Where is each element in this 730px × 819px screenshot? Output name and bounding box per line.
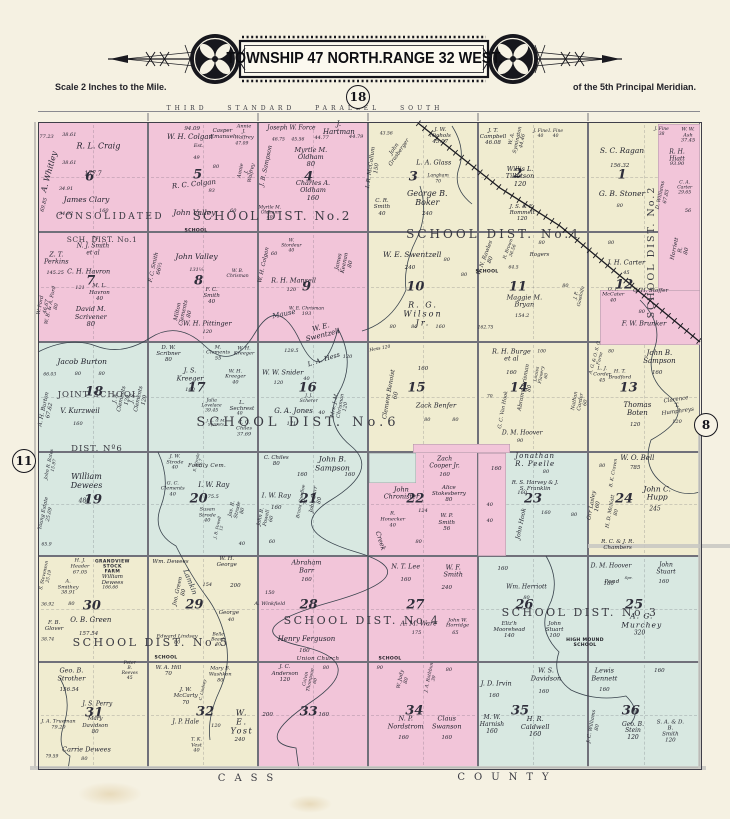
section-number: 1 <box>617 167 626 182</box>
owner-label: Charles A. Oldham 160 <box>296 180 330 202</box>
owner-label: 80 <box>608 349 614 354</box>
owner-label: Wm. Dewees <box>153 559 189 565</box>
section-10: 10W. E. Swentzell2408080R. G. Wilson Jr.… <box>368 232 478 342</box>
owner-label: F. W. Brunker <box>622 320 666 327</box>
owner-label: Jas. R. Strode 80 <box>227 499 247 522</box>
owner-label: J. A. Rathbun 30 <box>424 662 440 693</box>
meridian-note: of the 5th Principal Meridian. <box>573 82 696 92</box>
owner-label: B. K. Craven <box>609 459 619 488</box>
owner-label: 160 <box>319 712 330 718</box>
owner-label: A. Winkfield <box>254 602 285 608</box>
section-35: 35J. D. Irvin160W. S. Davidson160M. W. H… <box>478 662 588 768</box>
district-label: SCHOOL DIST. No.4 <box>256 614 468 627</box>
owner-label: J. B. Sampson <box>259 145 274 187</box>
owner-label: L. Sechrest <box>230 399 255 411</box>
section-19: 19John R. Bates 15.97William Dewees480Yo… <box>38 452 148 556</box>
owner-label: 156.54 <box>60 687 79 693</box>
owner-label: F. B. Glover <box>45 619 63 631</box>
owner-label: Claus Swanson <box>432 716 462 731</box>
owner-label: C. A. Carter 29.65 <box>677 180 692 195</box>
owner-label: H. J. Header 67.05 <box>71 559 90 576</box>
owner-label: Orr Lasley 160 <box>586 490 603 521</box>
owner-label: 156.32 <box>610 163 629 169</box>
owner-label: 80 <box>639 310 645 316</box>
owner-label: John Grasberger <box>383 134 411 167</box>
owner-label: O. B. Green <box>70 618 111 626</box>
page-ref-left: 11 <box>12 449 36 473</box>
owner-label: 46.75 <box>272 138 285 143</box>
owner-label: W. S. Davidson <box>531 668 561 683</box>
owner-label: C. R. Smith 40 <box>374 198 391 216</box>
owner-label: 160 <box>435 325 445 331</box>
owner-label: 480 <box>79 499 90 506</box>
owner-label: Clarence T. Humphreys <box>660 394 695 417</box>
owner-label: W. E. Swentzell <box>383 250 441 258</box>
district-label: SCHOOL DIST. No.2 <box>176 209 368 223</box>
owner-label: Mary Davidson 80 <box>82 716 108 734</box>
owner-label: 240 <box>234 737 245 743</box>
section-7: 773Z. T. Perkins145.25N. J. Smith et alC… <box>38 232 148 342</box>
owner-label: 80 <box>543 471 549 477</box>
owner-label: 160 <box>297 472 308 478</box>
owner-label: 160 <box>418 366 429 372</box>
section-34: 3490W. Judy 80J. A. Rathbun 3080N. P. No… <box>368 662 478 768</box>
section-15: 15Hess 120Clement Benoist 60160Zack Benf… <box>368 342 478 452</box>
owner-label: Peter B. Reeves 45 <box>121 661 138 681</box>
owner-label: O. P. McCater 40 <box>602 287 624 304</box>
owner-label: Wm. Herriott <box>506 585 547 592</box>
section-number: 27 <box>406 597 424 612</box>
section-number: 36 <box>622 703 640 718</box>
district-label: COUNTY <box>415 772 600 783</box>
owner-label: 60 <box>269 540 275 546</box>
owner-label: F. C. Smith 66⅔ <box>147 251 165 283</box>
owner-label: 34.91 <box>59 187 73 193</box>
poi-label: SCHOOL <box>184 229 207 234</box>
district-label: SCHOOL DIST. No.2 <box>646 152 657 352</box>
owner-label: 80 <box>562 284 568 290</box>
owner-label: 40 <box>303 377 309 383</box>
section-17: 17D. W. Scribner 80M. Clements 55W. H. K… <box>148 342 258 452</box>
owner-label: 77.23 <box>39 135 53 141</box>
owner-label: 175 <box>412 631 422 637</box>
owner-label: 160 <box>73 422 83 428</box>
owner-label: 160 <box>344 472 355 478</box>
owner-label: 47.09 <box>235 141 248 146</box>
owner-label: J. S. Kreeger <box>177 368 204 383</box>
owner-label: J. J. Scherer <box>300 394 318 404</box>
owner-label: 80 <box>213 166 219 172</box>
owner-label: N. T. Lee <box>391 564 420 571</box>
owner-label: 80 <box>98 373 104 379</box>
owner-label: Langham <box>427 173 448 178</box>
owner-label: 120 <box>343 355 353 361</box>
owner-label: G. B. Stoner <box>599 190 645 198</box>
owner-label: Calvin Thompson 60 <box>301 666 321 692</box>
section-21: 21C. Chiles 80John B. Sampson160160I. W.… <box>258 452 368 556</box>
owner-label: L. A. Glass <box>416 159 451 166</box>
owner-label: Eliz'h Moorehead 140 <box>493 621 525 639</box>
owner-label: J. D. Irvin <box>481 680 512 687</box>
paper-stain <box>288 795 332 813</box>
owner-label: 66.03 <box>43 373 56 378</box>
owner-label: 160 <box>301 577 312 583</box>
owner-label: 80 <box>390 325 396 331</box>
section-number: 30 <box>83 598 101 613</box>
district-label: SCH. DIST. No.1 <box>55 235 149 244</box>
owner-label: M. W. Harnish 160 <box>480 715 504 735</box>
owner-label: Young Estate 25.09 <box>38 497 56 532</box>
owner-label: W. H. Colgan <box>258 247 272 284</box>
owner-label: J. T. Campbell 46.08 <box>480 128 507 146</box>
section-number: 32 <box>196 704 214 719</box>
district-label: SCHOOL DIST. No.1 <box>374 227 614 241</box>
owner-label: 177.7 <box>84 171 101 178</box>
owner-label: J. P. Hale <box>172 720 199 727</box>
owner-label: 120 <box>287 289 297 295</box>
district-label: SCHOOL DIST. No.6 <box>150 415 446 430</box>
section-24: 24W. O. Bell78580Orr Lasley 160B. K. Cra… <box>588 452 700 556</box>
owner-label: 160 <box>599 687 610 693</box>
owner-label: J. C. Anderson 120 <box>272 664 299 682</box>
owner-label: W. Stordeur 40 <box>281 238 301 253</box>
district-color-overlay <box>413 444 510 453</box>
owner-label: H. T. Bradford <box>608 370 631 381</box>
owner-label: 40 <box>487 520 493 526</box>
owner-label: 240 <box>442 585 453 591</box>
owner-label: 100 <box>537 349 546 354</box>
owner-label: Lewis Bennett <box>591 668 617 683</box>
owner-label: Zach Cooper Jr. <box>429 456 460 469</box>
owner-label: 145.25 <box>46 271 64 277</box>
section-33: 33J. C. Anderson 120Calvin Thompson 6080… <box>258 662 368 768</box>
owner-label: Mary B. Washkon 80 <box>209 667 232 684</box>
owner-label: D. M. Hoover <box>502 430 543 437</box>
section-number: 15 <box>407 381 425 396</box>
owner-label: 44.79 <box>349 135 363 141</box>
owner-label: 160 <box>442 735 453 741</box>
owner-label: 40 <box>228 619 234 625</box>
owner-label: I. R. McCollum 150 <box>365 147 383 190</box>
owner-label: 80 <box>523 596 529 602</box>
section-number: 10 <box>406 280 424 295</box>
owner-label: W. W. Ash 37.45 <box>681 128 695 145</box>
owner-label: GRANDVIEW STOCK FARM <box>95 560 130 575</box>
owner-label: W. P. Smith 56 <box>432 513 462 531</box>
owner-label: John B. Powell 60 <box>256 508 276 529</box>
owner-label: S. Stevenson 25.19 <box>39 560 55 591</box>
district-label: DIST. Nº6 <box>64 444 130 454</box>
owner-label: 160 <box>299 648 310 654</box>
paper-stain <box>78 782 142 806</box>
county-line-road <box>30 766 706 770</box>
owner-label: 65 <box>452 631 458 637</box>
owner-label: 80 <box>617 204 623 210</box>
section-8: 8F. C. Smith 66⅔John Valley131⅓W. B. Chr… <box>148 232 258 342</box>
owner-label: F. C. Smith 40 <box>203 286 220 304</box>
owner-label: N. J. Smith et al <box>77 244 109 257</box>
owner-label: J. S. Perry <box>82 701 112 708</box>
owner-label: William Dewees <box>95 574 130 586</box>
owner-label: James Clary <box>64 195 110 203</box>
owner-label: L. A. Hess <box>307 352 341 369</box>
owner-label: Creek <box>373 530 386 551</box>
owner-label: J. A. Trueman 79.20 <box>41 720 75 731</box>
owner-label: A. H. Burton 67.62 <box>37 392 56 429</box>
owner-label: J. W. Nichols 45.07 <box>430 127 451 145</box>
owner-label: 175.5 <box>204 495 218 501</box>
owner-label: 90 <box>517 440 523 446</box>
owner-label: 160 <box>498 566 509 572</box>
section-number: 8 <box>194 273 203 288</box>
owner-label: 43.56 <box>380 131 393 136</box>
owner-label: M. L. Havron 40 <box>89 283 110 301</box>
district-label: JOINT SCHOOL <box>57 390 139 400</box>
owner-label: Casper Emanuel <box>210 128 235 140</box>
owner-label: W. H. Kreeger 40 <box>225 369 246 386</box>
owner-label: 38.61 <box>62 161 76 167</box>
owner-label: 160 <box>517 491 527 497</box>
owner-label: 785 <box>630 465 641 471</box>
owner-label: Henry Ferguson <box>278 636 336 644</box>
owner-label: I. W. Ray <box>198 482 229 490</box>
owner-label: 160 <box>654 668 665 674</box>
owner-label: W. O. Bell <box>620 455 654 463</box>
section-28: 28Abraham Barr160150A. WinkfieldHenry Fe… <box>258 556 368 662</box>
owner-label: W. A. Symington 44.46 <box>507 125 529 155</box>
owner-label: 65.9 <box>42 542 52 547</box>
poi-label: SCHOOL <box>475 270 498 275</box>
section-32: 32W. A. Hill 70Mary B. Washkon 80J. W. M… <box>148 662 258 768</box>
owner-label: 160 <box>541 511 551 517</box>
owner-label: Maggie M. Bryan <box>507 295 543 310</box>
owner-label: Nathan Corder 60 <box>571 392 591 413</box>
owner-label: 162.75 <box>478 326 494 331</box>
owner-label: 160 <box>659 579 670 585</box>
owner-label: M. Clements 55 <box>206 345 230 362</box>
owner-label: 240 <box>422 211 433 217</box>
owner-label: 200 <box>230 583 241 589</box>
owner-label: 154 <box>203 583 213 589</box>
poi-label: Pond <box>604 579 619 585</box>
owner-label: 70 <box>487 394 493 399</box>
owner-label: John Chronister <box>384 487 419 502</box>
owner-label: R. C. & J. R. Chambers <box>601 539 634 551</box>
banner-box: TOWNSHIP 47 NORTH.RANGE 32 WEST. <box>240 41 488 77</box>
owner-label: Zack Benfer <box>416 402 456 409</box>
district-label: CONSOLIDATED <box>44 212 176 222</box>
section-2: 2J. T. Campbell 46.08W. A. Symington 44.… <box>478 122 588 232</box>
owner-label: 94.09 <box>184 126 200 132</box>
owner-label: John C. Hupp <box>643 485 670 502</box>
owner-label: Myrtle M. Oldham 80 <box>294 147 327 169</box>
owner-label: John Hook <box>516 508 529 540</box>
owner-label: Jonathan R. Peelle <box>509 453 561 469</box>
owner-label: 160 <box>185 388 195 394</box>
owner-label: I. W. Ray <box>262 492 291 499</box>
owner-label: 120 <box>203 331 213 337</box>
owner-label: A. Whitley <box>40 150 59 193</box>
owner-label: 90 <box>377 666 383 672</box>
owner-label: George <box>219 610 239 616</box>
section-13: 13A. G. & O. S. C. Furse80L. J. Corder 4… <box>588 342 700 452</box>
poi-label: SCHOOL <box>154 656 177 661</box>
owner-label: W. H. Pittinger <box>183 320 232 327</box>
owner-label: 60 <box>271 252 277 258</box>
owner-label: W. H. George <box>212 556 242 568</box>
owner-label: 93 <box>208 189 214 195</box>
owner-label: G. C. Van Hook <box>498 391 510 430</box>
poi-label: SCHOOL <box>378 657 401 662</box>
district-label: CASS <box>200 773 300 784</box>
owner-label: W. A. Hill 70 <box>156 665 182 677</box>
section-14: 14R. H. Burge et al160G. C. Van Hook70Ab… <box>478 342 588 452</box>
owner-label: 160 <box>506 370 517 376</box>
section-number: 11 <box>509 280 527 295</box>
owner-label: Geo. B. Strother <box>57 668 85 683</box>
poi-label: HIGH MOUND SCHOOL <box>566 638 604 648</box>
owner-label: H. D. McNatt 80 <box>606 495 623 530</box>
owner-label: Clement Benoist 60 <box>382 369 404 421</box>
owner-label: 160 <box>491 466 502 472</box>
owner-label: R. H. Burge et al <box>492 349 531 364</box>
owner-label: J. C. Williams 80 <box>586 710 603 745</box>
owner-label: John Barr 80 <box>309 486 326 515</box>
owner-label: R. L. Craig <box>76 142 120 151</box>
section-31: 31Geo. B. Strother156.54Peter B. Reeves … <box>38 662 148 768</box>
page-ref-right: 8 <box>694 413 718 437</box>
plat-map-page: { "header": { "banner_title": "TOWNSHIP … <box>0 0 730 819</box>
owner-label: J. W. Strode 40 <box>166 455 183 472</box>
owner-label: 160 <box>398 735 409 741</box>
owner-label: I. Fine 40 <box>548 129 563 139</box>
owner-label: R. Honecker 40 <box>380 512 405 529</box>
owner-label: 80 <box>68 602 74 608</box>
owner-label: 38.61 <box>62 133 76 139</box>
owner-label: 193 <box>302 312 312 318</box>
owner-label: J. S. & E. Rommelt 120 <box>510 203 535 221</box>
owner-label: 120 <box>211 725 221 731</box>
owner-label: John Valley <box>175 253 217 261</box>
owner-label: John Stuart <box>650 563 683 576</box>
owner-label: D. W. Scribner 80 <box>156 345 180 363</box>
owner-label: 128.5 <box>284 349 298 355</box>
district-color-overlay <box>369 453 416 483</box>
owner-label: 245 <box>649 507 660 514</box>
owner-label: R. Brown 36.56 <box>503 239 520 262</box>
owner-label: H. R. Caldwell 160 <box>521 717 550 739</box>
owner-label: 160 <box>400 577 411 583</box>
owner-label: W. F. Smith <box>441 564 465 579</box>
owner-label: Julia Lovelace 39.45 <box>202 398 222 413</box>
owner-label: 80 <box>571 513 577 519</box>
east-boundary-road <box>698 428 702 768</box>
owner-label: David M. Scrivener 80 <box>75 306 107 328</box>
section-9: 9W. H. ColganW. Stordeur 4060James Keena… <box>258 232 368 342</box>
owner-label: Hess 120 <box>369 345 391 354</box>
owner-label: G. C. Clements 40 <box>161 481 185 498</box>
section-number: 29 <box>185 597 203 612</box>
owner-label: Willis L. Tillotson 120 <box>506 166 535 188</box>
owner-label: 150 <box>265 592 275 598</box>
page-ref-top: 18 <box>346 85 370 109</box>
owner-label: 56 <box>685 209 691 215</box>
owner-label: 120 <box>630 422 641 428</box>
owner-label: S. C. Ragan <box>600 147 644 155</box>
owner-label: A. Smithey 38.91 <box>58 580 79 597</box>
owner-label: S. A. & D. B. Smith 120 <box>656 719 685 744</box>
owner-label: 160 <box>539 689 550 695</box>
owner-label: 36.92 <box>41 602 54 607</box>
owner-label: John B. Sampson <box>315 456 350 473</box>
owner-label: J. W. McCarty 70 <box>174 687 198 705</box>
owner-label: 121 <box>75 286 85 292</box>
owner-label: John Stuart 100 <box>546 621 564 639</box>
owner-label: 93.90 <box>670 162 684 168</box>
owner-label: Abraham Barr <box>291 560 321 575</box>
owner-label: 80 <box>538 241 544 247</box>
owner-label: J. P. Gandolfo <box>572 285 586 307</box>
poi-label: Union Church <box>297 656 340 662</box>
owner-label: 45.56 <box>291 138 304 143</box>
owner-label: 45 <box>623 271 629 277</box>
owner-label: 70 <box>435 180 441 185</box>
owner-label: 80 <box>446 669 452 675</box>
owner-label: William Dewees <box>56 473 116 491</box>
scale-note: Scale 2 Inches to the Mile. <box>55 82 167 92</box>
owner-label: 80 <box>415 540 421 546</box>
owner-label: 80 <box>608 241 614 247</box>
owner-label: 166.66 <box>102 586 118 591</box>
section-3: 3John Grasberger43.56J. W. Nichols 45.07… <box>368 122 478 232</box>
owner-label: J. H. Carter <box>608 260 646 267</box>
owner-label: Thomas Boten <box>623 402 651 418</box>
owner-label: 80 <box>444 258 450 264</box>
owner-label: 69.85 <box>41 197 50 212</box>
owner-label: Carrie Dewees <box>62 747 111 754</box>
owner-label: W. B. Chrisman <box>227 269 249 279</box>
owner-label: W. W. Snider <box>262 370 303 377</box>
owner-label: 80 <box>599 464 605 470</box>
owner-label: W. H. Colgan <box>167 134 213 142</box>
owner-label: 80 <box>461 273 467 279</box>
township-map: 6A. Whitley77.2338.61R. L. Craig38.61177… <box>0 0 730 819</box>
owner-label: J. Fine 40 <box>533 129 547 139</box>
district-label: SCHOOL DIST. No.5 <box>50 636 252 649</box>
owner-label: J. B. Powell 12 <box>214 516 227 540</box>
owner-label: W. E. Yost <box>231 710 254 737</box>
owner-label: Geo. B. Stein 120 <box>622 722 644 742</box>
section-number: 28 <box>300 597 318 612</box>
owner-label: James Keenan 80 <box>334 251 357 276</box>
owner-label: Alice Stokesberry 80 <box>432 485 466 503</box>
section-number: 33 <box>300 704 318 719</box>
owner-label: C. Lindsey <box>199 679 208 701</box>
owner-label: Z. T. Perkins <box>44 252 69 267</box>
owner-label: 79.59 <box>46 754 59 759</box>
page-title: TOWNSHIP 47 NORTH.RANGE 32 WEST. <box>226 50 502 68</box>
owner-label: Susan Strode 40 <box>199 508 216 525</box>
owner-label: C. H. Havron <box>67 268 110 275</box>
owner-label: 49 <box>193 156 199 162</box>
district-label: THIRD STANDARD PARALLEL SOUTH <box>155 105 455 112</box>
owner-label: C. Chiles 80 <box>264 455 289 467</box>
owner-label: 154.2 <box>515 314 529 320</box>
owner-label: Spr. <box>625 576 633 580</box>
poi-label: Family Cem. <box>188 463 226 469</box>
owner-label: 160 <box>439 472 450 478</box>
owner-label: 40 <box>487 503 493 509</box>
